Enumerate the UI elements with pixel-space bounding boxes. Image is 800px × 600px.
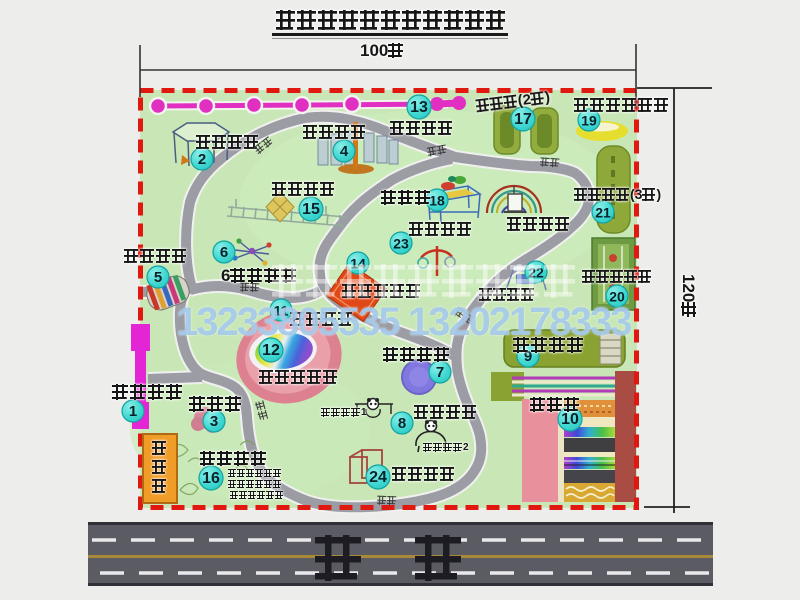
svg-text:10: 10 <box>561 411 579 428</box>
svg-text:2: 2 <box>198 151 206 168</box>
svg-text:23: 23 <box>393 236 409 252</box>
svg-text:6: 6 <box>220 244 228 261</box>
svg-text:3: 3 <box>210 413 218 430</box>
svg-text:13: 13 <box>410 99 428 116</box>
svg-text:7: 7 <box>436 364 444 381</box>
svg-text:15: 15 <box>302 201 320 218</box>
svg-text:24: 24 <box>369 469 387 486</box>
svg-text:1: 1 <box>129 403 137 420</box>
svg-text:16: 16 <box>202 470 220 487</box>
svg-text:17: 17 <box>514 111 532 128</box>
svg-text:21: 21 <box>595 205 611 221</box>
svg-text:8: 8 <box>398 415 406 432</box>
svg-text:5: 5 <box>154 269 162 286</box>
svg-text:19: 19 <box>581 113 597 129</box>
svg-text:4: 4 <box>340 143 349 160</box>
